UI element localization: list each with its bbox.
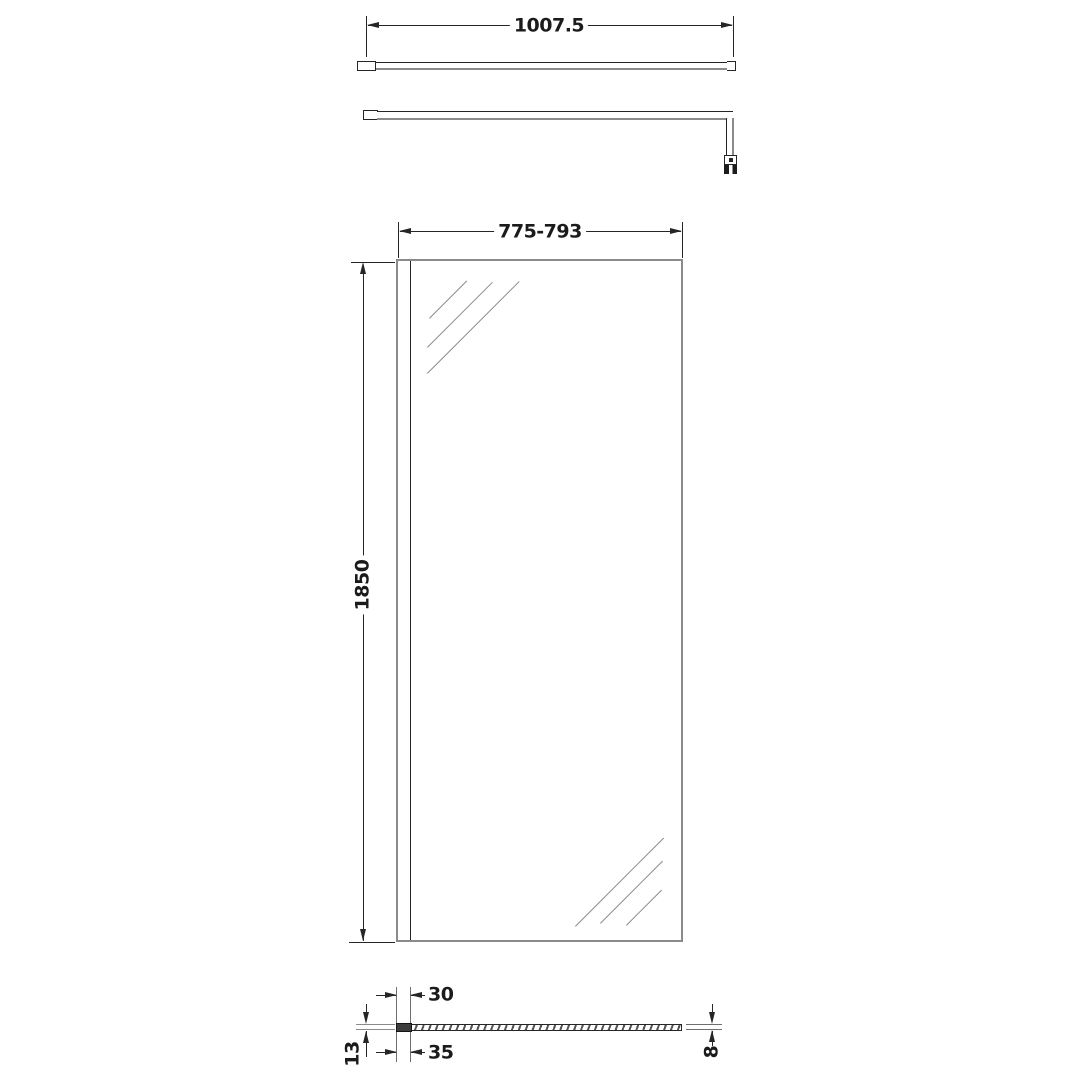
support-arm-vertical-tube [726, 118, 734, 157]
profile-width-label: 35 [428, 1042, 453, 1063]
panel-height-label: 1850 [353, 556, 374, 615]
support-bar-width-label: 1007.5 [510, 15, 588, 36]
dim-arrow-down-icon [709, 1012, 715, 1024]
dim-arrow-right-icon [670, 228, 682, 234]
dim-arrow-left-icon [399, 228, 411, 234]
technical-drawing: 1007.5 775-793 1850 [0, 0, 1080, 1080]
wall-profile-edge [410, 261, 411, 940]
dim-arrow-right-icon [385, 1049, 397, 1055]
dim-arrow-left-icon [367, 22, 379, 28]
panel-width-label: 775-793 [494, 221, 586, 242]
support-bar-tube-plan [376, 62, 728, 71]
glass-clamp-screw [729, 158, 733, 162]
dim-extension-line [351, 262, 395, 263]
wall-profile-section [396, 1023, 412, 1033]
dim-arrow-up-icon [360, 262, 366, 274]
dim-extension-line [356, 1024, 395, 1025]
dim-extension-line [733, 16, 734, 57]
dim-extension-line [349, 942, 395, 943]
support-arm-horizontal-tube [377, 111, 733, 120]
dim-arrow-right-icon [385, 992, 397, 998]
wall-bracket-plan [357, 61, 376, 71]
dim-arrow-up-icon [709, 1030, 715, 1042]
dim-extension-line [686, 1029, 722, 1030]
wall-bracket-front [363, 110, 378, 121]
glass-thickness-label: 8 [701, 1046, 722, 1059]
dim-arrow-right-icon [721, 22, 733, 28]
dim-arrow-down-icon [363, 1012, 369, 1024]
dim-extension-line [686, 1024, 722, 1025]
glass-section-bar [411, 1024, 682, 1032]
dim-arrow-up-icon [363, 1031, 369, 1043]
profile-depth-label: 13 [343, 1041, 364, 1066]
profile-inset-label: 30 [428, 985, 453, 1006]
dim-arrow-left-icon [410, 1049, 422, 1055]
dim-arrow-down-icon [360, 929, 366, 941]
glass-clamp-jaws [724, 165, 738, 174]
glass-end-cap-plan [727, 61, 736, 71]
dim-arrow-left-icon [410, 992, 422, 998]
